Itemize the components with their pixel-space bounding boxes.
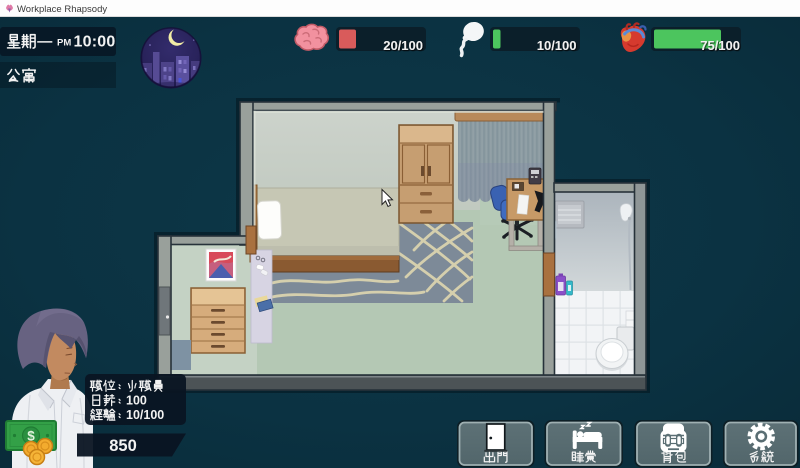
svg-text:PM: PM — [57, 38, 71, 49]
svg-text:10/100: 10/100 — [126, 408, 164, 422]
svg-text:10/100: 10/100 — [537, 38, 577, 53]
svg-text:100: 100 — [126, 394, 147, 408]
svg-text:20/100: 20/100 — [383, 38, 423, 53]
svg-text:Workplace Rhapsody: Workplace Rhapsody — [17, 4, 107, 15]
svg-text:75/100: 75/100 — [700, 38, 740, 53]
svg-text:850: 850 — [109, 437, 137, 455]
svg-text:10:00: 10:00 — [74, 34, 116, 51]
